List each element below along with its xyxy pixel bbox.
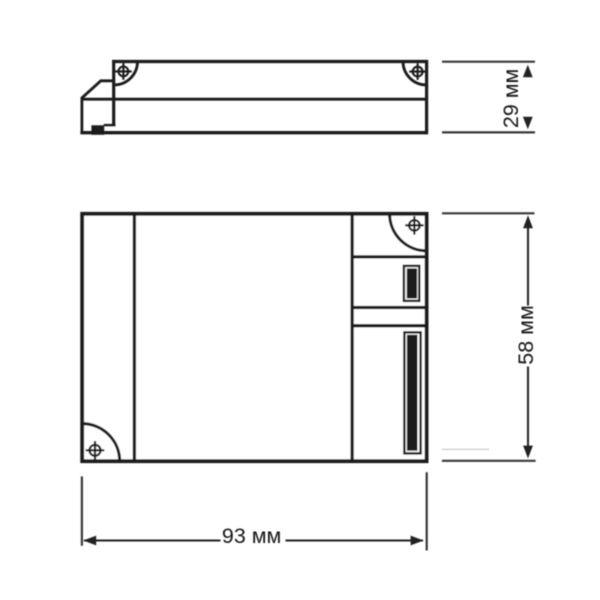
svg-text:58 мм: 58 мм — [514, 305, 538, 364]
svg-text:93 мм: 93 мм — [222, 524, 281, 548]
svg-text:29 мм: 29 мм — [499, 69, 523, 128]
